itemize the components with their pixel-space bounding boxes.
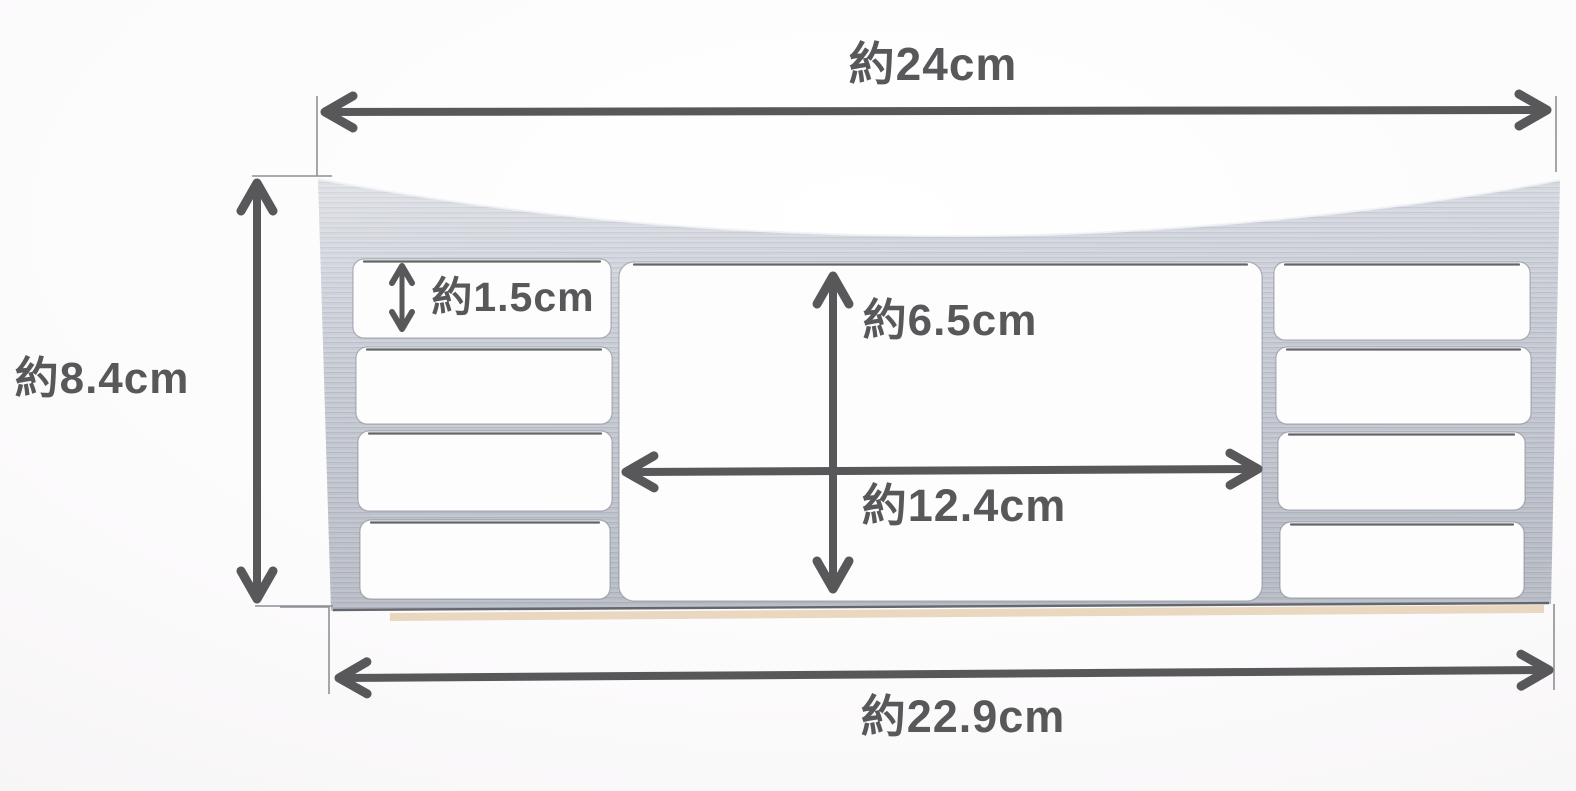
cutout-right-1	[1274, 262, 1530, 340]
label-bottom-width: 約22.9cm	[861, 694, 1066, 739]
arrow-bottom-width	[340, 670, 1548, 678]
label-center-cutout-width: 約12.4cm	[862, 483, 1067, 528]
dimension-diagram: 約24cm 約8.4cm 約1.5cm 約6.5cm 約12.4cm 約22.9…	[0, 0, 1576, 791]
cutout-left-3	[358, 431, 612, 511]
cutout-left-2	[356, 347, 612, 424]
label-small-cutout-height: 約1.5cm	[431, 277, 594, 318]
cutout-right-4	[1280, 522, 1524, 598]
label-top-width: 約24cm	[849, 41, 1018, 87]
cutout-left-4	[360, 520, 610, 599]
label-left-height: 約8.4cm	[15, 357, 190, 401]
arrow-center-cutout-width	[627, 469, 1257, 472]
cutout-right-3	[1278, 432, 1525, 510]
arrow-top-width	[326, 110, 1546, 112]
panel-illustration	[0, 0, 1576, 791]
cutout-right-2	[1276, 347, 1531, 424]
label-center-cutout-height: 約6.5cm	[863, 299, 1038, 343]
